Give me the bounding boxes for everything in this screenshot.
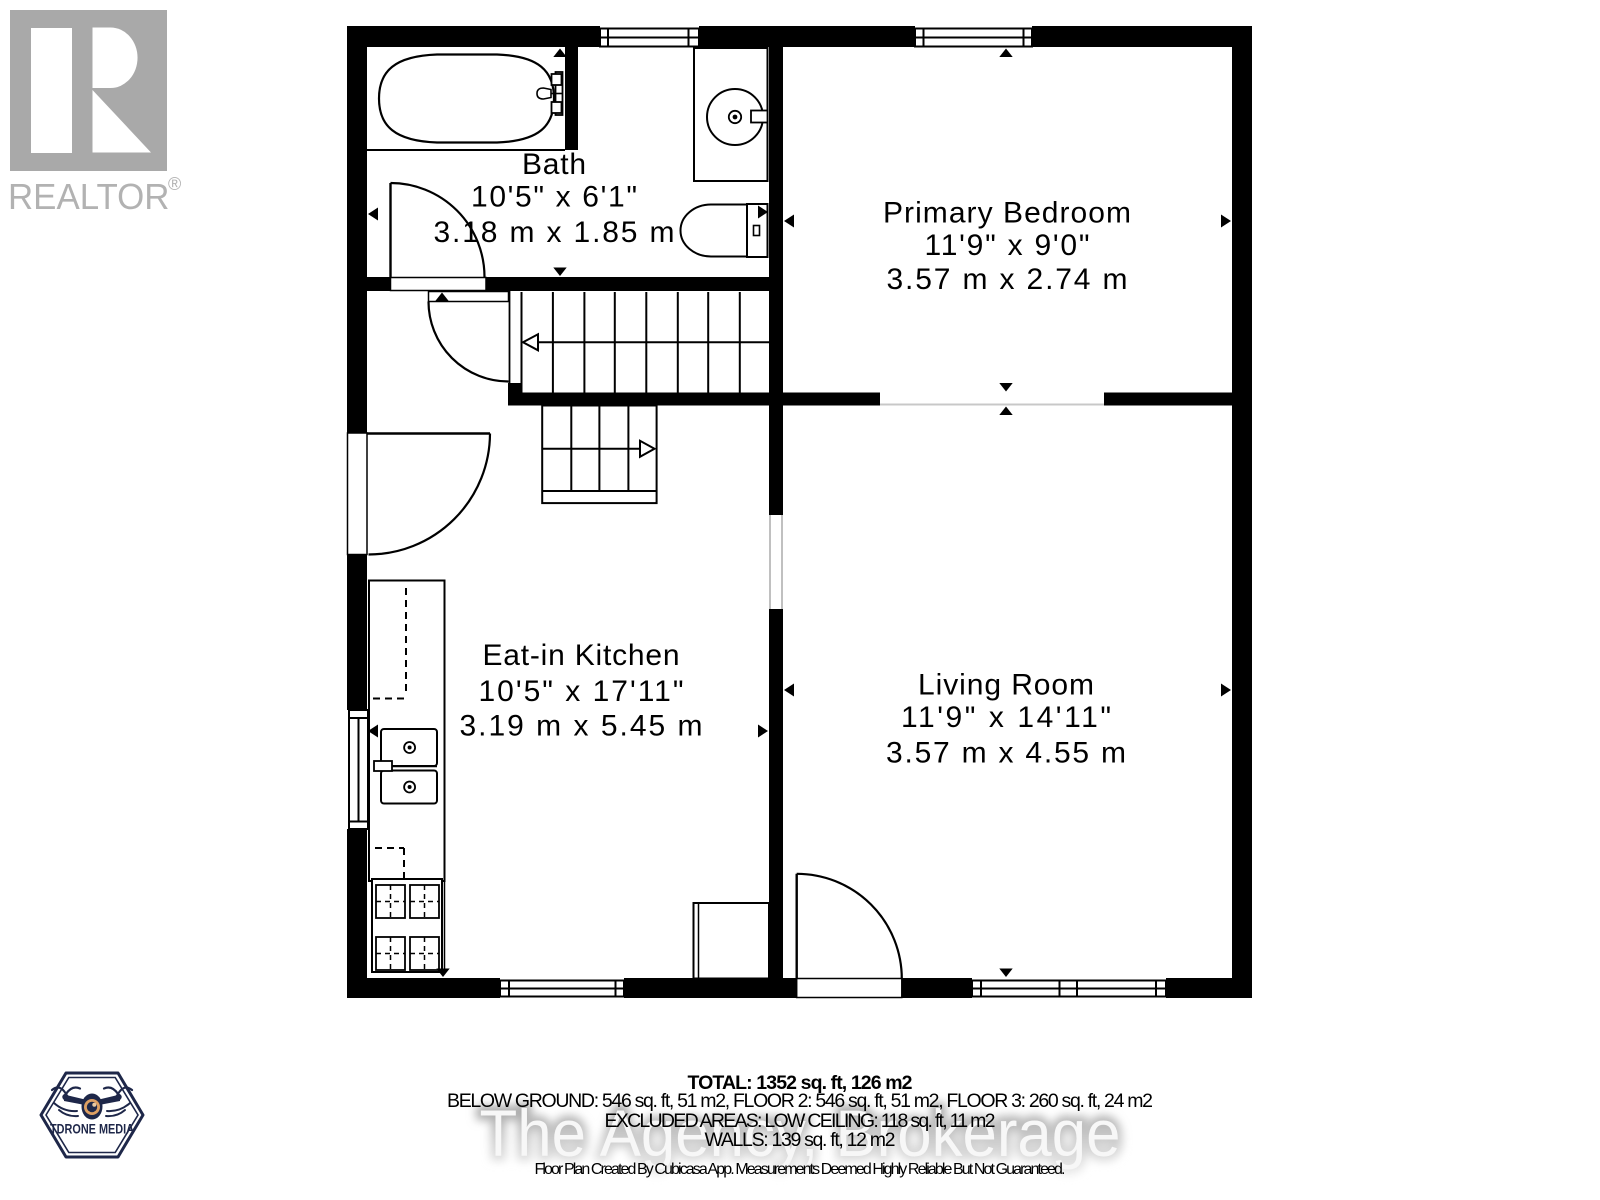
svg-text:10'5" x 17'11": 10'5" x 17'11" [479, 675, 684, 708]
svg-text:Floor Plan Created By Cubicasa: Floor Plan Created By Cubicasa App. Meas… [535, 1161, 1066, 1178]
svg-text:3.57 m x 2.74 m: 3.57 m x 2.74 m [887, 263, 1128, 296]
svg-text:Living Room: Living Room [918, 669, 1094, 702]
svg-text:®: ® [168, 174, 181, 194]
svg-text:TDRONE MEDIA: TDRONE MEDIA [50, 1121, 134, 1137]
svg-text:Primary Bedroom: Primary Bedroom [883, 197, 1131, 230]
svg-text:3.18 m x 1.85 m: 3.18 m x 1.85 m [434, 216, 675, 249]
svg-text:Bath: Bath [522, 148, 586, 181]
svg-text:WALLS: 139 sq. ft, 12 m2: WALLS: 139 sq. ft, 12 m2 [705, 1129, 896, 1151]
svg-text:3.57 m x 4.55 m: 3.57 m x 4.55 m [886, 737, 1126, 770]
svg-text:BELOW GROUND: 546 sq. ft, 51 m: BELOW GROUND: 546 sq. ft, 51 m2, FLOOR 2… [447, 1090, 1153, 1112]
svg-text:3.19 m x 5.45 m: 3.19 m x 5.45 m [460, 710, 703, 743]
svg-text:11'9" x 9'0": 11'9" x 9'0" [925, 229, 1090, 262]
svg-text:11'9" x 14'11": 11'9" x 14'11" [901, 701, 1111, 734]
svg-text:REALTOR: REALTOR [8, 176, 170, 217]
svg-text:Eat-in Kitchen: Eat-in Kitchen [483, 639, 680, 672]
svg-text:10'5" x 6'1": 10'5" x 6'1" [471, 181, 637, 214]
